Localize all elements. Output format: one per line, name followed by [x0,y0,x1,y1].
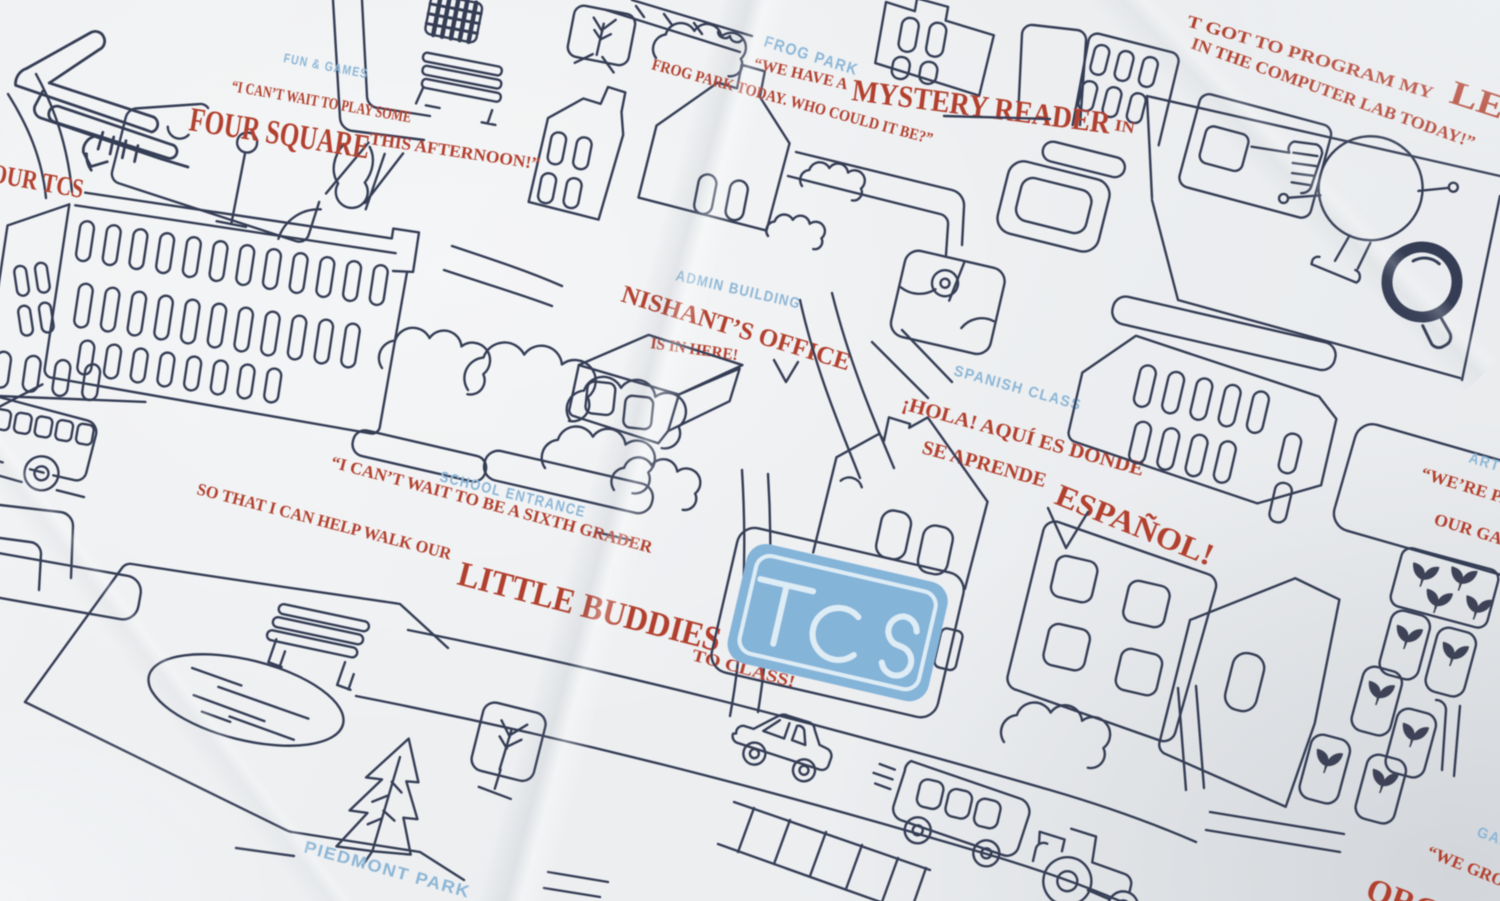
svg-text:SPANISH CLASS: SPANISH CLASS [952,362,1084,414]
svg-text:“WE GROW: “WE GROW [1425,842,1500,897]
svg-text:FUN & GAMES: FUN & GAMES [282,50,369,81]
svg-text:LITTLE BUDDIES: LITTLE BUDDIES [454,554,725,659]
svg-text:IN: IN [1113,117,1136,137]
svg-text:THIS AFTERNOON!”: THIS AFTERNOON!” [368,129,541,173]
svg-text:IN THE COMPUTER LAB TODAY!”: IN THE COMPUTER LAB TODAY!” [1189,34,1478,152]
svg-text:GARDEN: GARDEN [1475,824,1500,864]
svg-text:“AT OUR TCS: “AT OUR TCS [0,150,86,204]
